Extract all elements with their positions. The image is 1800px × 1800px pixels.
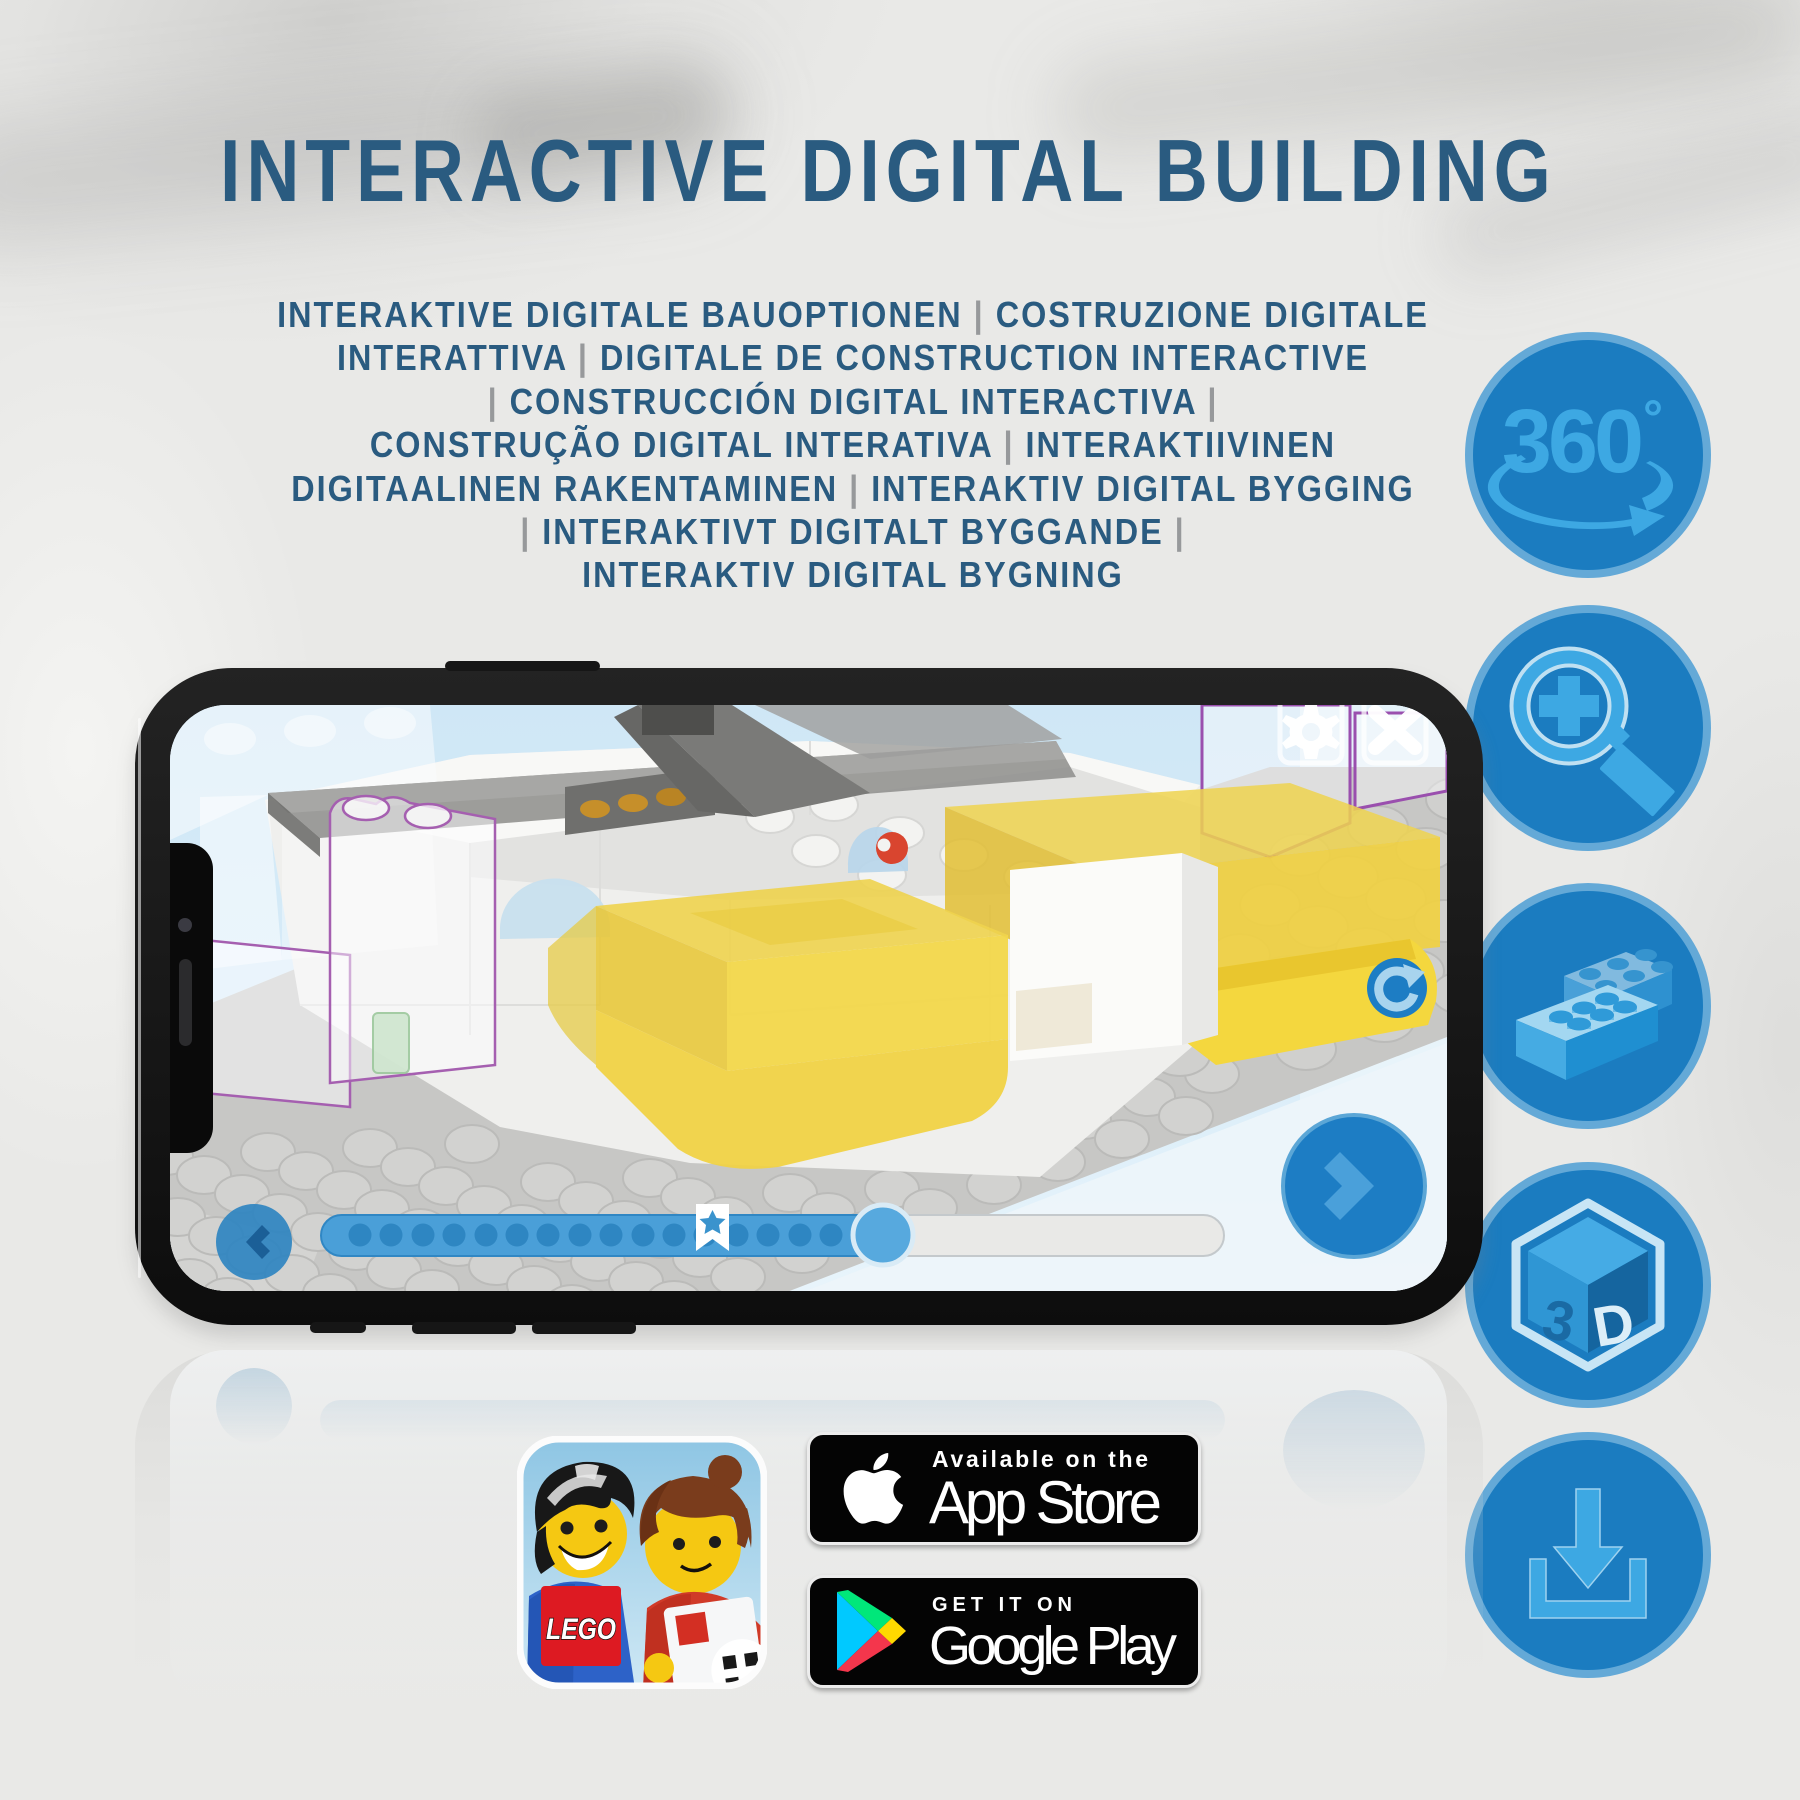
svg-text:360: 360 [1502,392,1641,492]
svg-text:Google Play: Google Play [929,1616,1177,1676]
svg-text:LEGO: LEGO [546,1613,616,1646]
svg-text:°: ° [1643,390,1663,446]
svg-text:App Store: App Store [929,1469,1162,1536]
svg-text:GET IT ON: GET IT ON [932,1594,1072,1616]
